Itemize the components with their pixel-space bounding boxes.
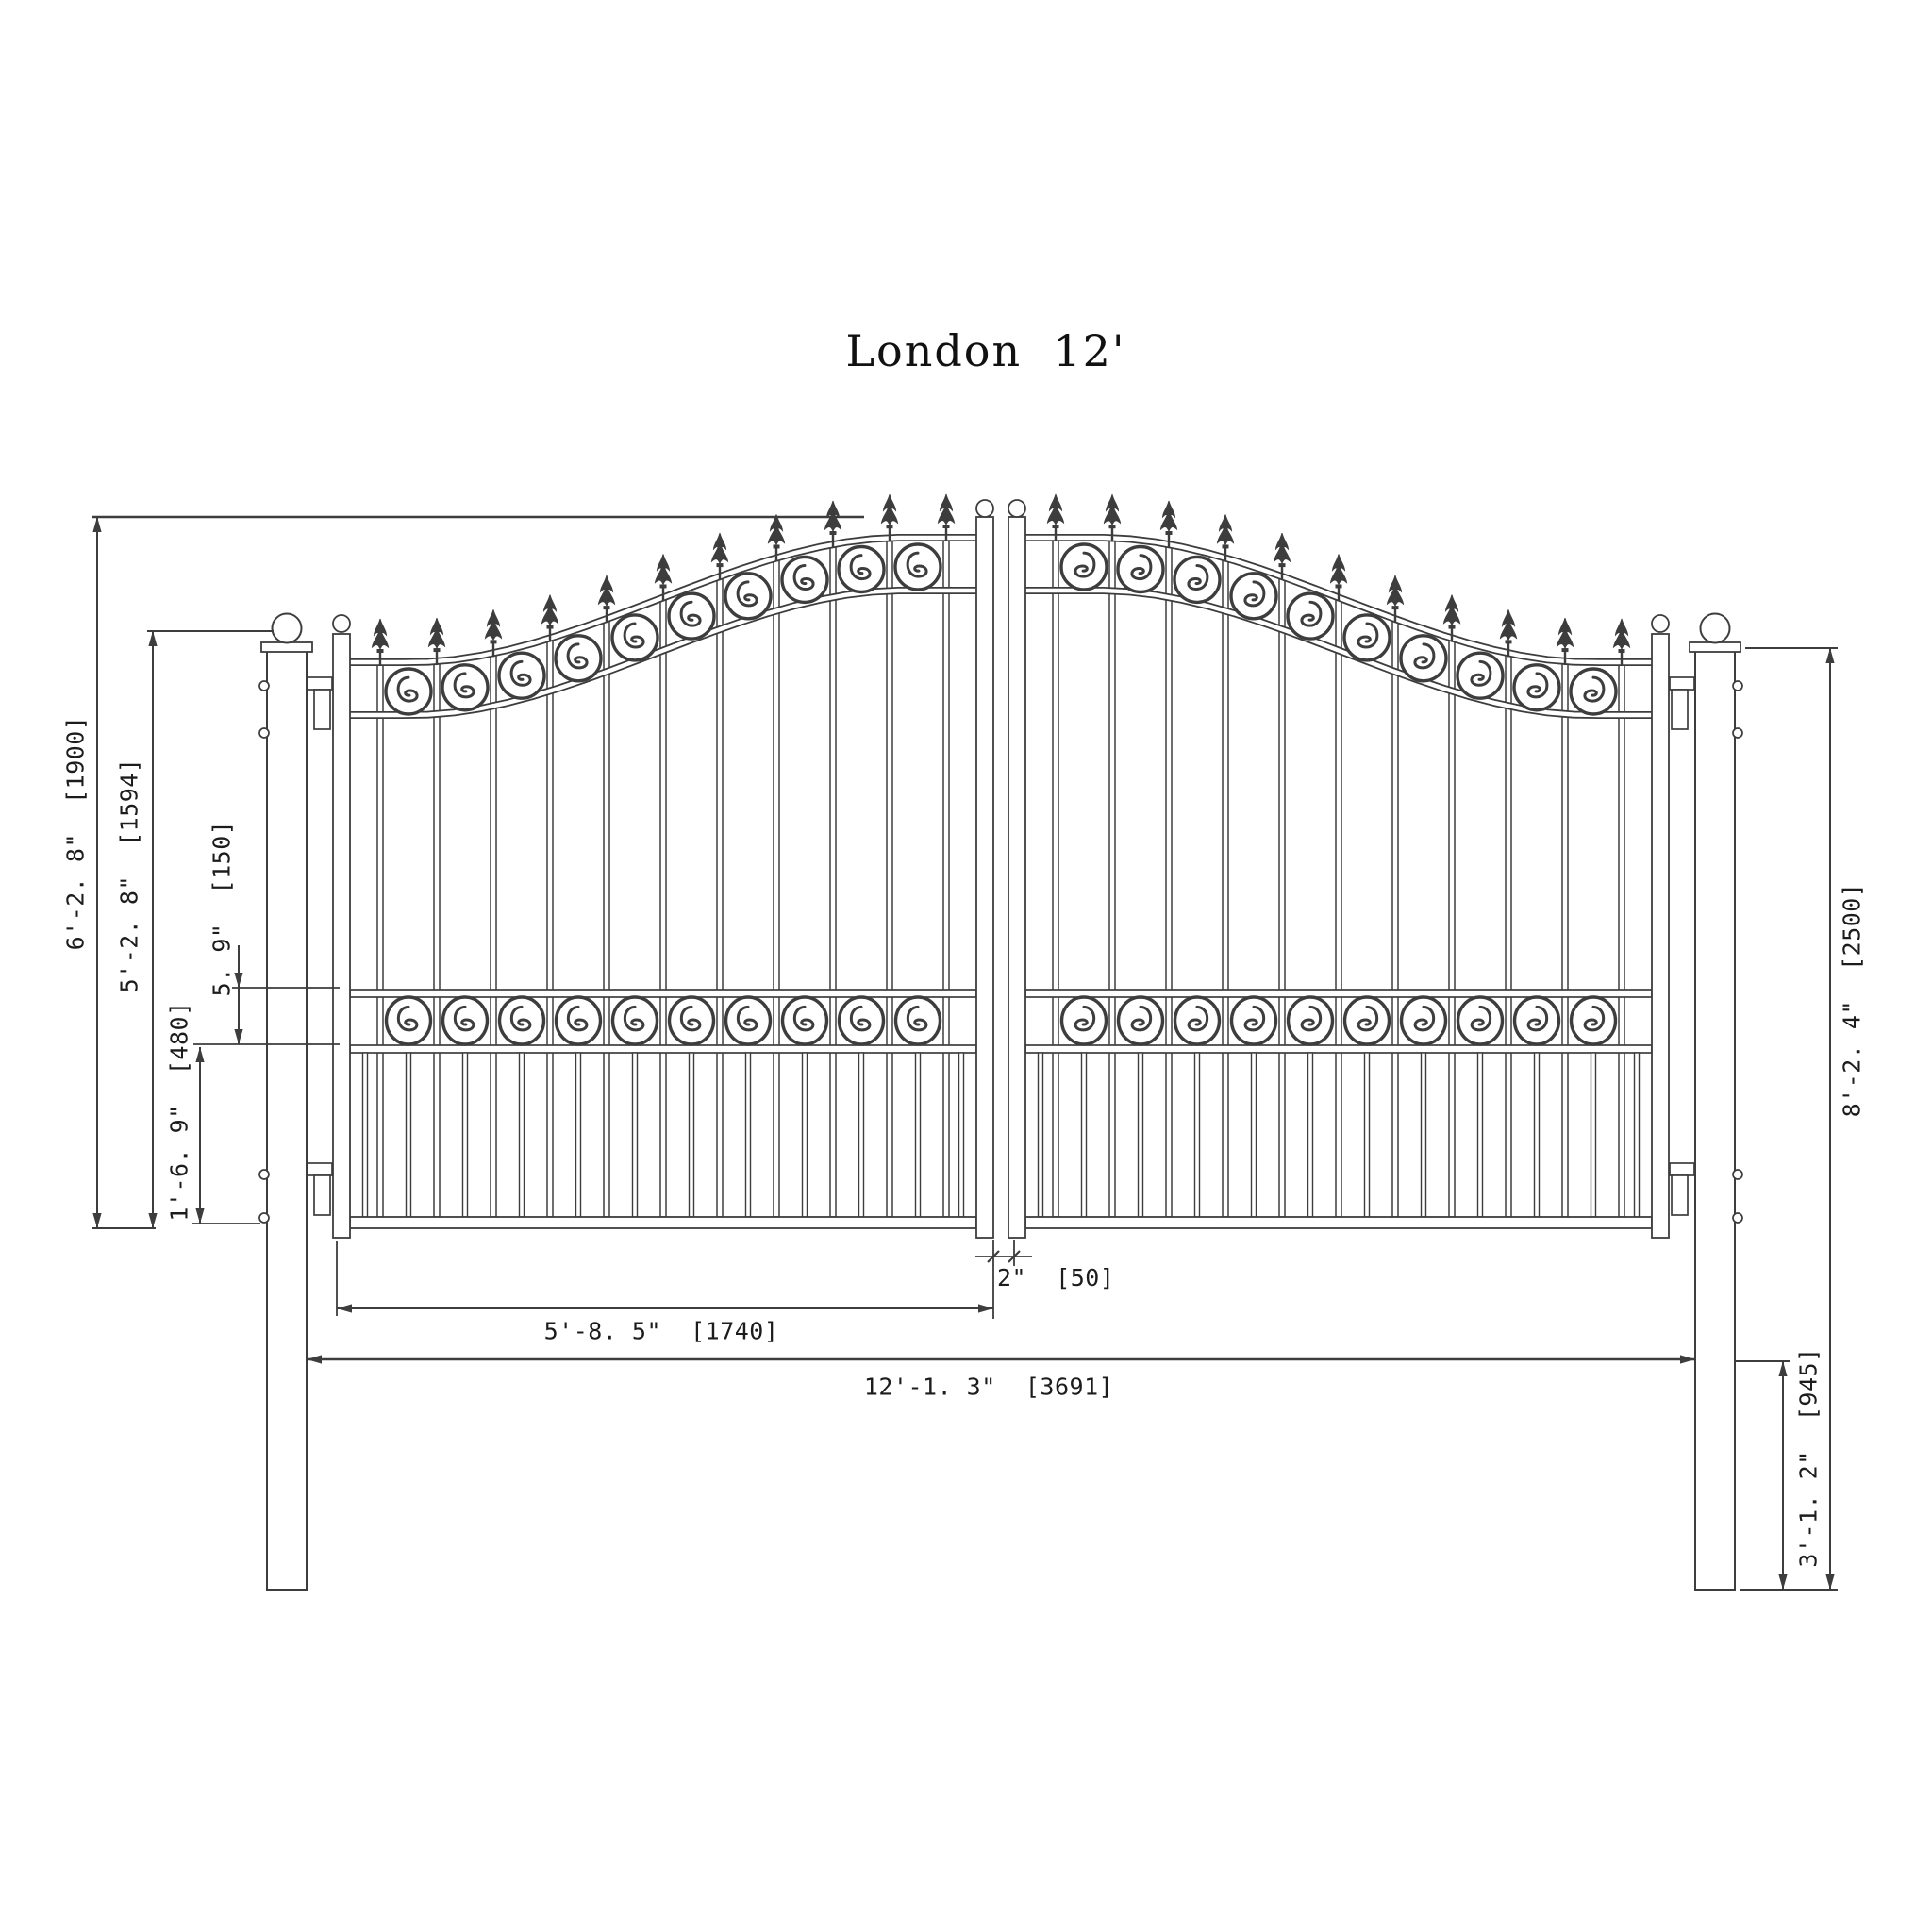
dim-label-leaf-width: 5'-8. 5" [1740] [544,1318,779,1345]
dim-label-post-buried-depth: 3'-1. 2" [945] [1795,1347,1823,1567]
gate-technical-drawing [0,0,1932,1932]
dim-label-overall-width: 12'-1. 3" [3691] [864,1374,1113,1401]
gate-leaf [333,494,993,1238]
dim-label-lower-section-height: 1'-6. 9" [480] [166,1001,193,1221]
dim-label-post-height: 8'-2. 4" [2500] [1839,883,1866,1118]
post [1690,614,1740,1591]
right-assembly [1008,494,1742,1590]
dim-label-total-height: 6'-2. 8" [1900] [62,716,90,951]
gate-leaf [1008,494,1669,1238]
post [261,614,312,1591]
drawing-sheet: London 12' 6'-2. 8" [1900] 5'-2. 8" [159… [0,0,1932,1932]
dim-label-scroll-band-height: 5. 9" [150] [208,821,236,997]
dim-label-leaf-gap: 2" [50] [997,1264,1114,1291]
dim-label-side-height: 5'-2. 8" [1594] [116,758,143,993]
left-assembly [259,494,993,1590]
drawing-title: London 12' [845,325,1125,376]
